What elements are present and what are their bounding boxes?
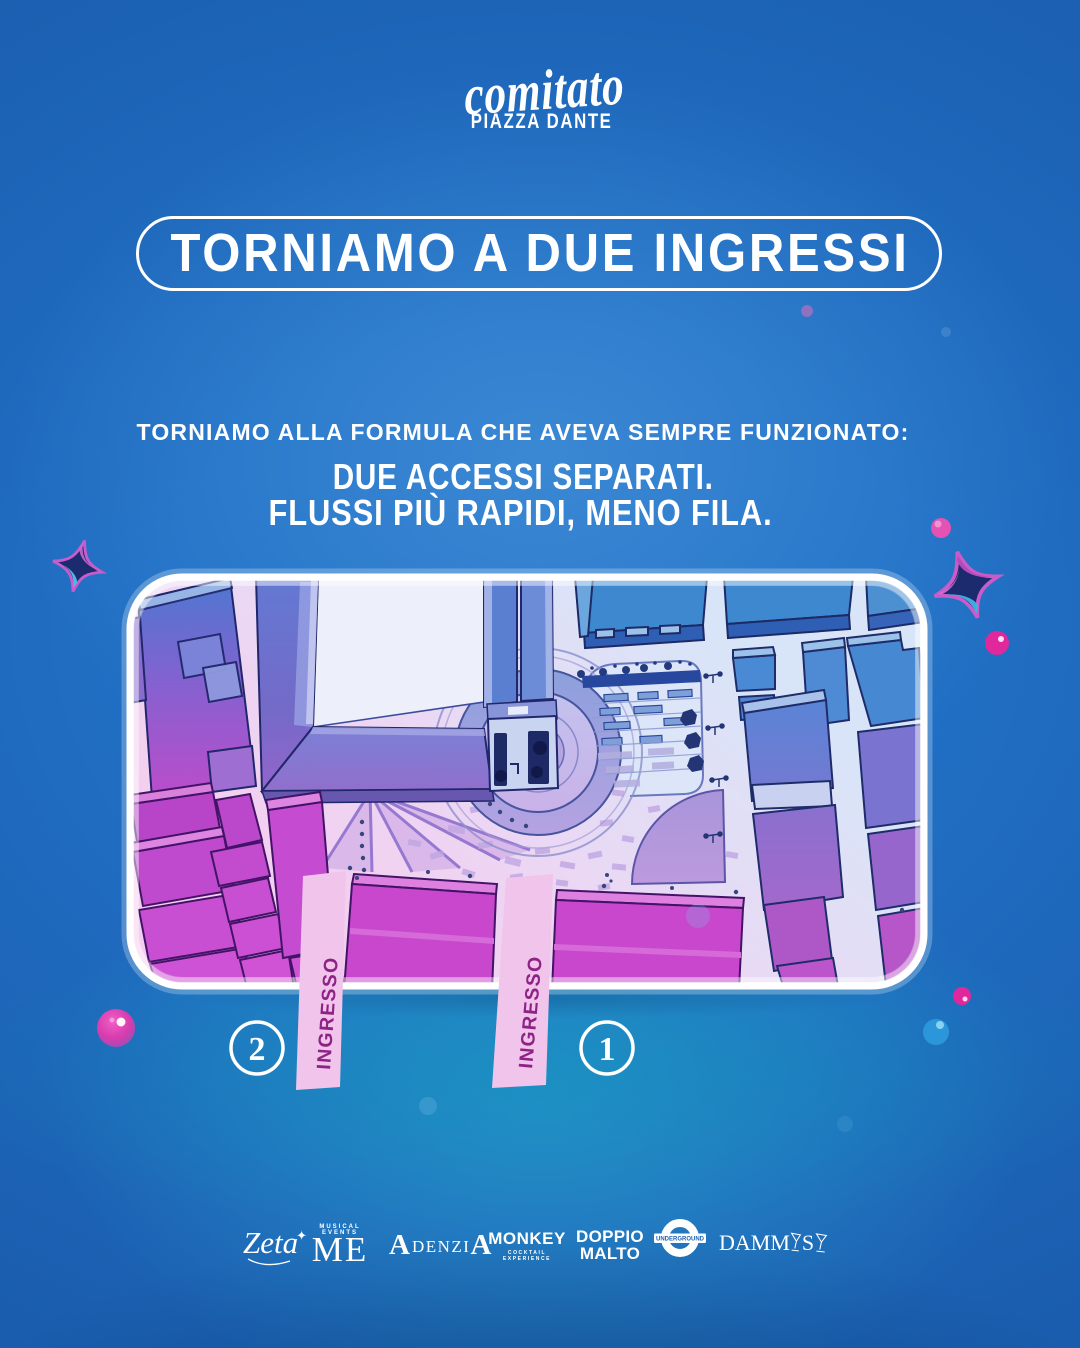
svg-text:2: 2 <box>249 1031 266 1068</box>
svg-text:UNDERGROUND: UNDERGROUND <box>656 1237 705 1243</box>
svg-text:1: 1 <box>599 1031 616 1068</box>
